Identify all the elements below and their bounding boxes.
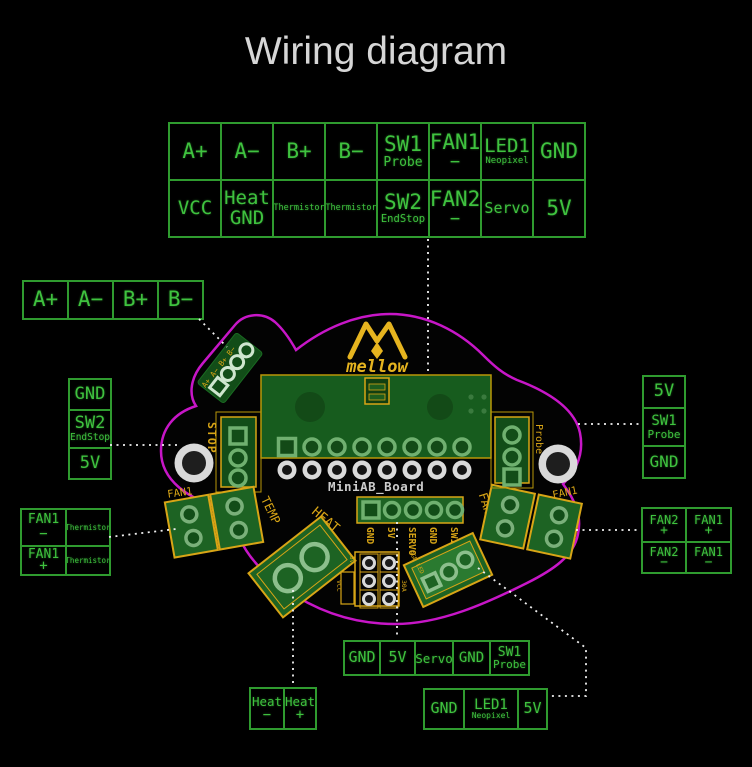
pin-cell: FAN1− (21, 509, 66, 546)
right-fan-grid: FAN2+ FAN1+ FAN2− FAN1− (641, 507, 732, 574)
pin-cell: LED1Neopixel (481, 123, 533, 180)
jumper-5v-label: 5V (348, 556, 355, 564)
stop-connector (216, 412, 261, 492)
pin-cell: SW1Probe (643, 408, 685, 446)
mellow-logo-text: mellow (345, 357, 408, 377)
pin-cell: LED1Neopixel (464, 689, 518, 729)
pin-cell: FAN1− (686, 542, 731, 573)
pin-cell: HeatGND (221, 180, 273, 237)
pin-cell: A+ (23, 281, 68, 319)
servo-header (357, 497, 463, 523)
amp-label: 30A (400, 580, 408, 592)
pin-cell: GND (424, 689, 464, 729)
bottom-servo-row: GND 5V Servo GND SW1Probe (343, 640, 530, 676)
pin-cell: 5V (533, 180, 585, 237)
pin-cell: 5V (69, 448, 111, 479)
driver-module (261, 375, 491, 458)
pin-cell: Servo (415, 641, 453, 675)
servo-header-label: 5V (385, 527, 396, 539)
heat-row: Heat− Heat+ (249, 687, 317, 730)
pin-cell: SW1Probe (377, 123, 429, 180)
right-probe-column: 5V SW1Probe GND (642, 375, 686, 479)
board-name: MiniAB_Board (328, 479, 424, 495)
pin-cell: 5V (643, 376, 685, 408)
pin-cell: B− (325, 123, 377, 180)
pin-cell: FAN1− (429, 123, 481, 180)
pin-cell: A− (221, 123, 273, 180)
pin-cell: GND (344, 641, 380, 675)
pin-cell: Heat+ (284, 688, 316, 729)
pin-cell: FAN2− (642, 542, 686, 573)
left-fan-grid: FAN1− Thermistor FAN1+ Thermistor (20, 508, 111, 576)
pin-cell: GND (533, 123, 585, 180)
pin-cell: VCC (169, 180, 221, 237)
bottom-led-row: GND LED1Neopixel 5V (423, 688, 548, 730)
pin-cell: FAN1+ (21, 546, 66, 575)
pin-cell: GND (69, 379, 111, 410)
page-title: Wiring diagram (0, 30, 752, 74)
pin-cell: Thermistor (325, 180, 377, 237)
pin-cell: 5V (518, 689, 547, 729)
pin-cell: SW1Probe (490, 641, 529, 675)
probe-connector (491, 412, 533, 488)
left-endstop-column: GND SW2EndStop 5V (68, 378, 112, 480)
pin-cell: Heat− (250, 688, 284, 729)
pcb-board: A+ A− B+ B− mellow (150, 300, 610, 640)
pin-cell: 5V (380, 641, 415, 675)
servo-header-label: GND (427, 527, 438, 544)
pin-cell: FAN1+ (686, 508, 731, 542)
pin-cell: GND (643, 446, 685, 478)
pin-cell: SW2EndStop (69, 410, 111, 448)
pin-cell: SW2EndStop (377, 180, 429, 237)
pin-cell: A− (68, 281, 113, 319)
top-pin-table: A+ A− B+ B− SW1Probe FAN1− LED1Neopixel … (168, 122, 586, 238)
mounting-hole-left (175, 444, 214, 483)
vcc-label: VCC (335, 580, 343, 592)
wiring-diagram-page: Wiring diagram A+ A− B+ B− SW1Probe FAN1… (0, 0, 752, 767)
pin-cell: Thermistor (66, 509, 110, 546)
pin-cell: Thermistor (66, 546, 110, 575)
pin-cell: B+ (273, 123, 325, 180)
pin-cell: A+ (169, 123, 221, 180)
pin-cell: FAN2− (429, 180, 481, 237)
probe-label: Probe (533, 424, 544, 454)
pin-cell: Thermistor (273, 180, 325, 237)
servo-header-label: GND (364, 527, 375, 544)
pin-cell: GND (453, 641, 490, 675)
pin-cell: Servo (481, 180, 533, 237)
pin-cell: FAN2+ (642, 508, 686, 542)
